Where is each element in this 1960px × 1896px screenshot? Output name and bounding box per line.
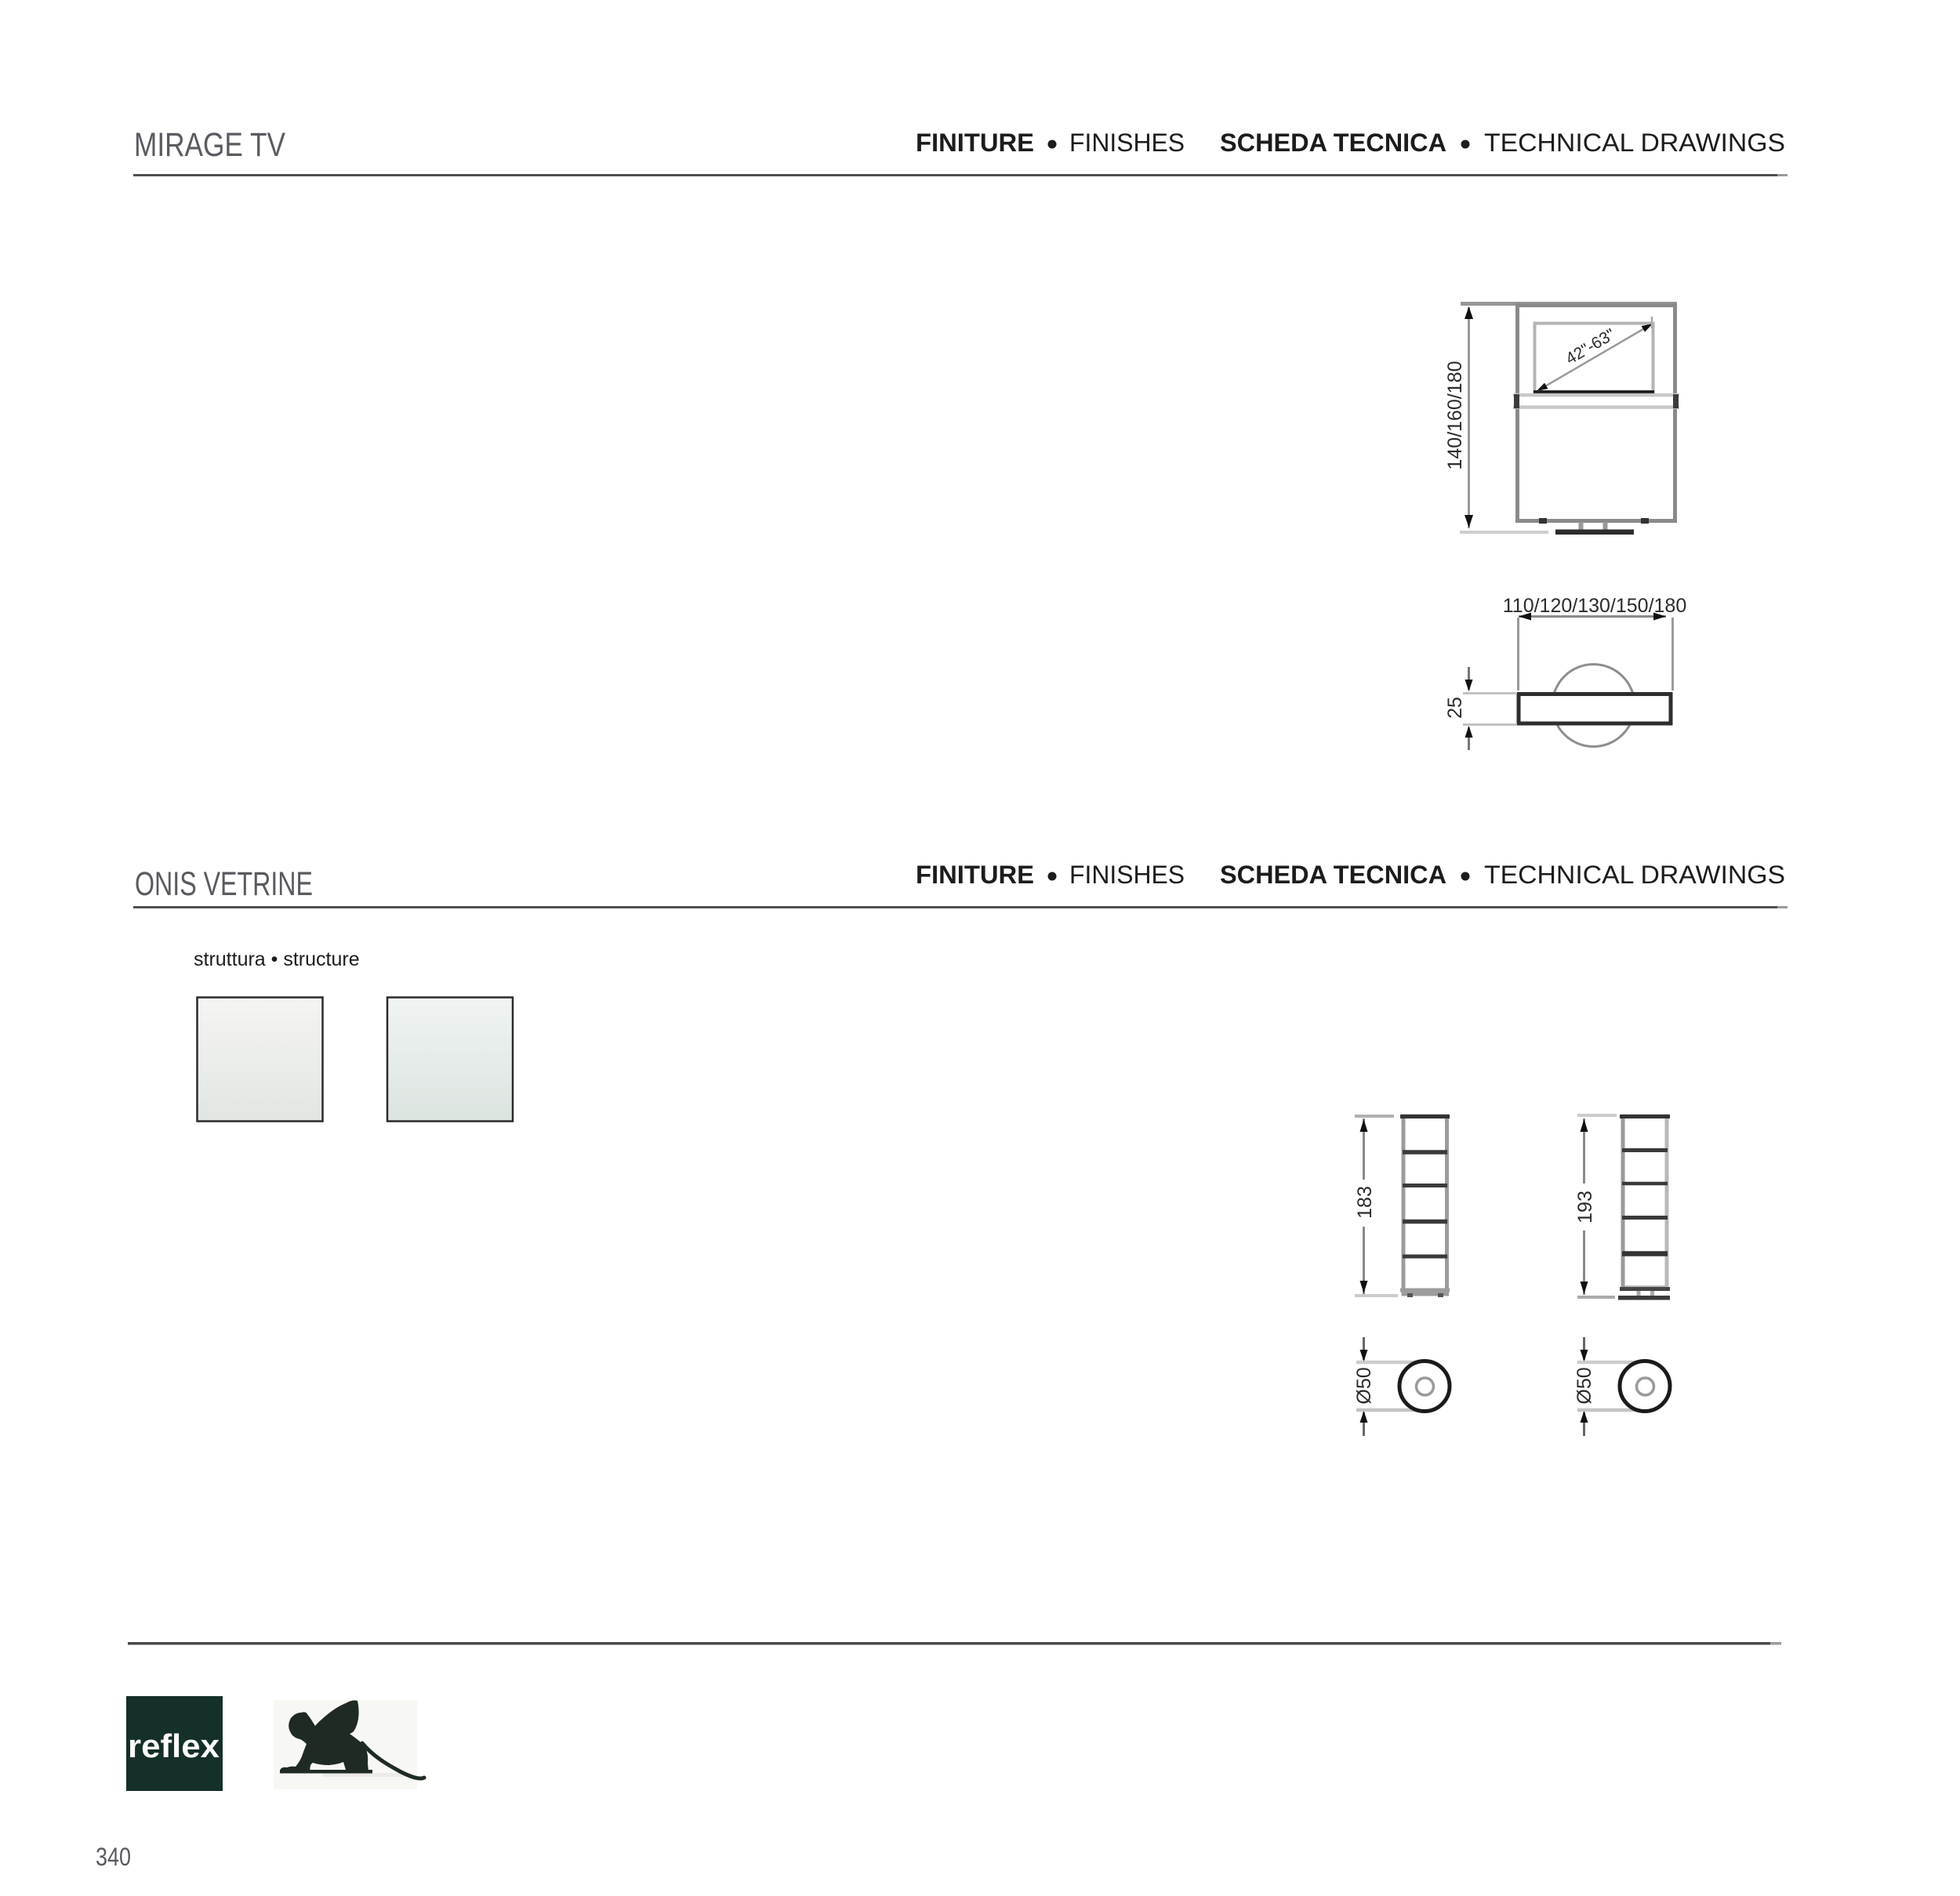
svg-text:340: 340 [96, 1843, 131, 1871]
svg-text:SCHEDA TECNICA: SCHEDA TECNICA [1220, 129, 1446, 157]
svg-text:FINITURE: FINITURE [916, 129, 1034, 157]
svg-text:183: 183 [1354, 1186, 1376, 1219]
svg-text:140/160/180: 140/160/180 [1444, 361, 1466, 469]
svg-text:FINITURE: FINITURE [916, 861, 1034, 889]
svg-text:25: 25 [1444, 697, 1466, 719]
svg-text:Ø50: Ø50 [1573, 1367, 1595, 1404]
svg-text:Ø50: Ø50 [1353, 1367, 1375, 1404]
svg-text:TECHNICAL DRAWINGS: TECHNICAL DRAWINGS [1484, 129, 1785, 157]
svg-text:reflex: reflex [128, 1727, 220, 1764]
svg-text:MIRAGE TV: MIRAGE TV [134, 126, 285, 164]
svg-text:struttura • structure: struttura • structure [194, 948, 360, 970]
svg-text:FINISHES: FINISHES [1069, 861, 1185, 889]
svg-text:SCHEDA TECNICA: SCHEDA TECNICA [1220, 861, 1446, 889]
svg-text:TECHNICAL DRAWINGS: TECHNICAL DRAWINGS [1484, 861, 1785, 889]
svg-text:193: 193 [1574, 1191, 1596, 1224]
svg-text:ONIS VETRINE: ONIS VETRINE [135, 865, 313, 903]
svg-text:FINISHES: FINISHES [1069, 129, 1185, 157]
